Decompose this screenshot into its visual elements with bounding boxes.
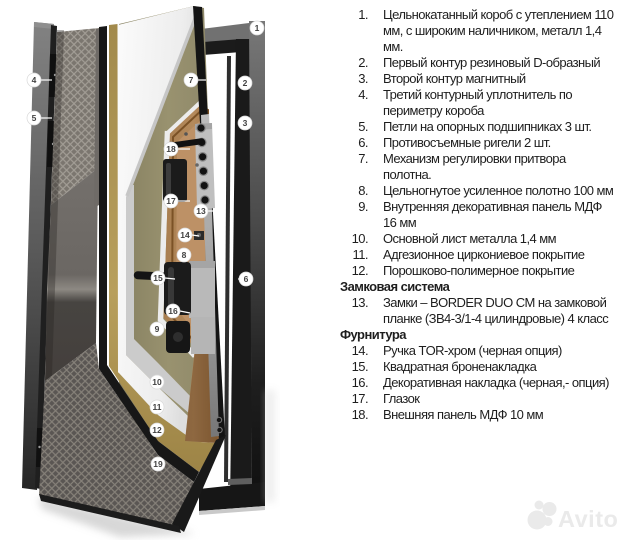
- svg-text:Avito: Avito: [558, 506, 618, 532]
- svg-text:19: 19: [153, 459, 163, 469]
- svg-text:12: 12: [152, 425, 162, 435]
